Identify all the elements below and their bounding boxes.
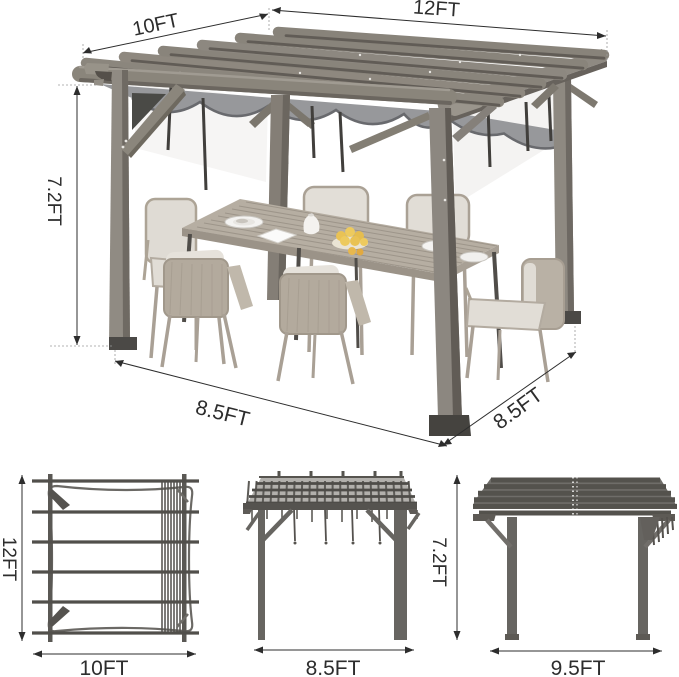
svg-text:10FT: 10FT	[79, 657, 128, 677]
svg-text:7.2FT: 7.2FT	[428, 537, 449, 587]
svg-text:12FT: 12FT	[412, 0, 460, 22]
svg-text:12FT: 12FT	[0, 537, 19, 582]
svg-text:9.5FT: 9.5FT	[551, 657, 606, 677]
svg-text:7.2FT: 7.2FT	[43, 176, 64, 226]
svg-text:8.5FT: 8.5FT	[306, 657, 361, 677]
